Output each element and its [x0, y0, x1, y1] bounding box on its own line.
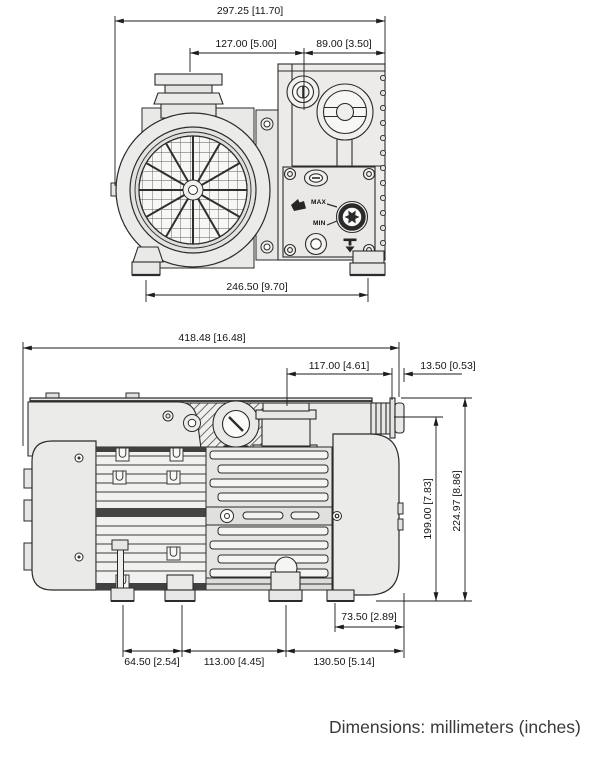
exhaust-port-side: [371, 398, 404, 438]
units-note: Dimensions: millimeters (inches): [329, 717, 581, 738]
dim-body-height-label: 199.00 [7.83]: [422, 478, 434, 539]
dim-foot-to-port-label: 73.50 [2.89]: [341, 611, 396, 623]
oil-fill-plug: [305, 170, 328, 186]
dim-inlet-to-port-label: 117.00 [4.61]: [309, 360, 370, 372]
oil-min-label: MIN: [313, 220, 326, 227]
dim-foot-span-a-label: 64.50 [2.54]: [124, 656, 179, 668]
motor-fan-shroud: [111, 113, 270, 267]
oil-panel: [283, 167, 375, 257]
inlet-flange: [154, 74, 223, 118]
oil-box-end-cap: [327, 434, 403, 601]
oil-drain-plug: [306, 234, 327, 255]
side-view-drawing: [23, 342, 472, 658]
motor-foot: [133, 247, 163, 262]
dim-flange-to-inlet-label: 127.00 [5.00]: [215, 38, 276, 50]
drawing-page: 297.25 [11.70] 127.00 [5.00] 89.00 [3.50…: [0, 0, 614, 757]
dim-port-protrusion-label: 13.50 [0.53]: [420, 360, 475, 372]
foot-mid-left: [167, 575, 193, 590]
drawing-linework: [0, 0, 614, 757]
dim-inlet-to-edge-label: 89.00 [3.50]: [316, 38, 371, 50]
dim-foot-span-c-label: 130.50 [5.14]: [313, 656, 374, 668]
top-view-drawing: [111, 16, 386, 302]
dim-foot-span-b-label: 113.00 [4.45]: [204, 656, 265, 668]
dim-overall-height-label: 224.97 [8.86]: [451, 470, 463, 531]
dim-overall-width-label: 297.25 [11.70]: [217, 5, 283, 17]
dim-foot-span-label: 246.50 [9.70]: [226, 281, 287, 293]
panel-screw: [285, 245, 296, 256]
pump-module-louvers: [206, 447, 332, 590]
pump-housing-front: [278, 64, 386, 260]
motor-fins: [96, 447, 206, 590]
foot-mid-right: [271, 572, 300, 590]
oil-max-label: MAX: [311, 199, 326, 206]
panel-screw: [364, 169, 375, 180]
oil-sight-glass: [337, 202, 368, 233]
motor-end-bell: [24, 441, 96, 590]
panel-screw: [285, 169, 296, 180]
cap-foot: [327, 590, 354, 601]
inlet-port: [287, 76, 319, 108]
pump-foot: [353, 251, 384, 263]
dim-overall-length-label: 418.48 [16.48]: [178, 332, 245, 344]
